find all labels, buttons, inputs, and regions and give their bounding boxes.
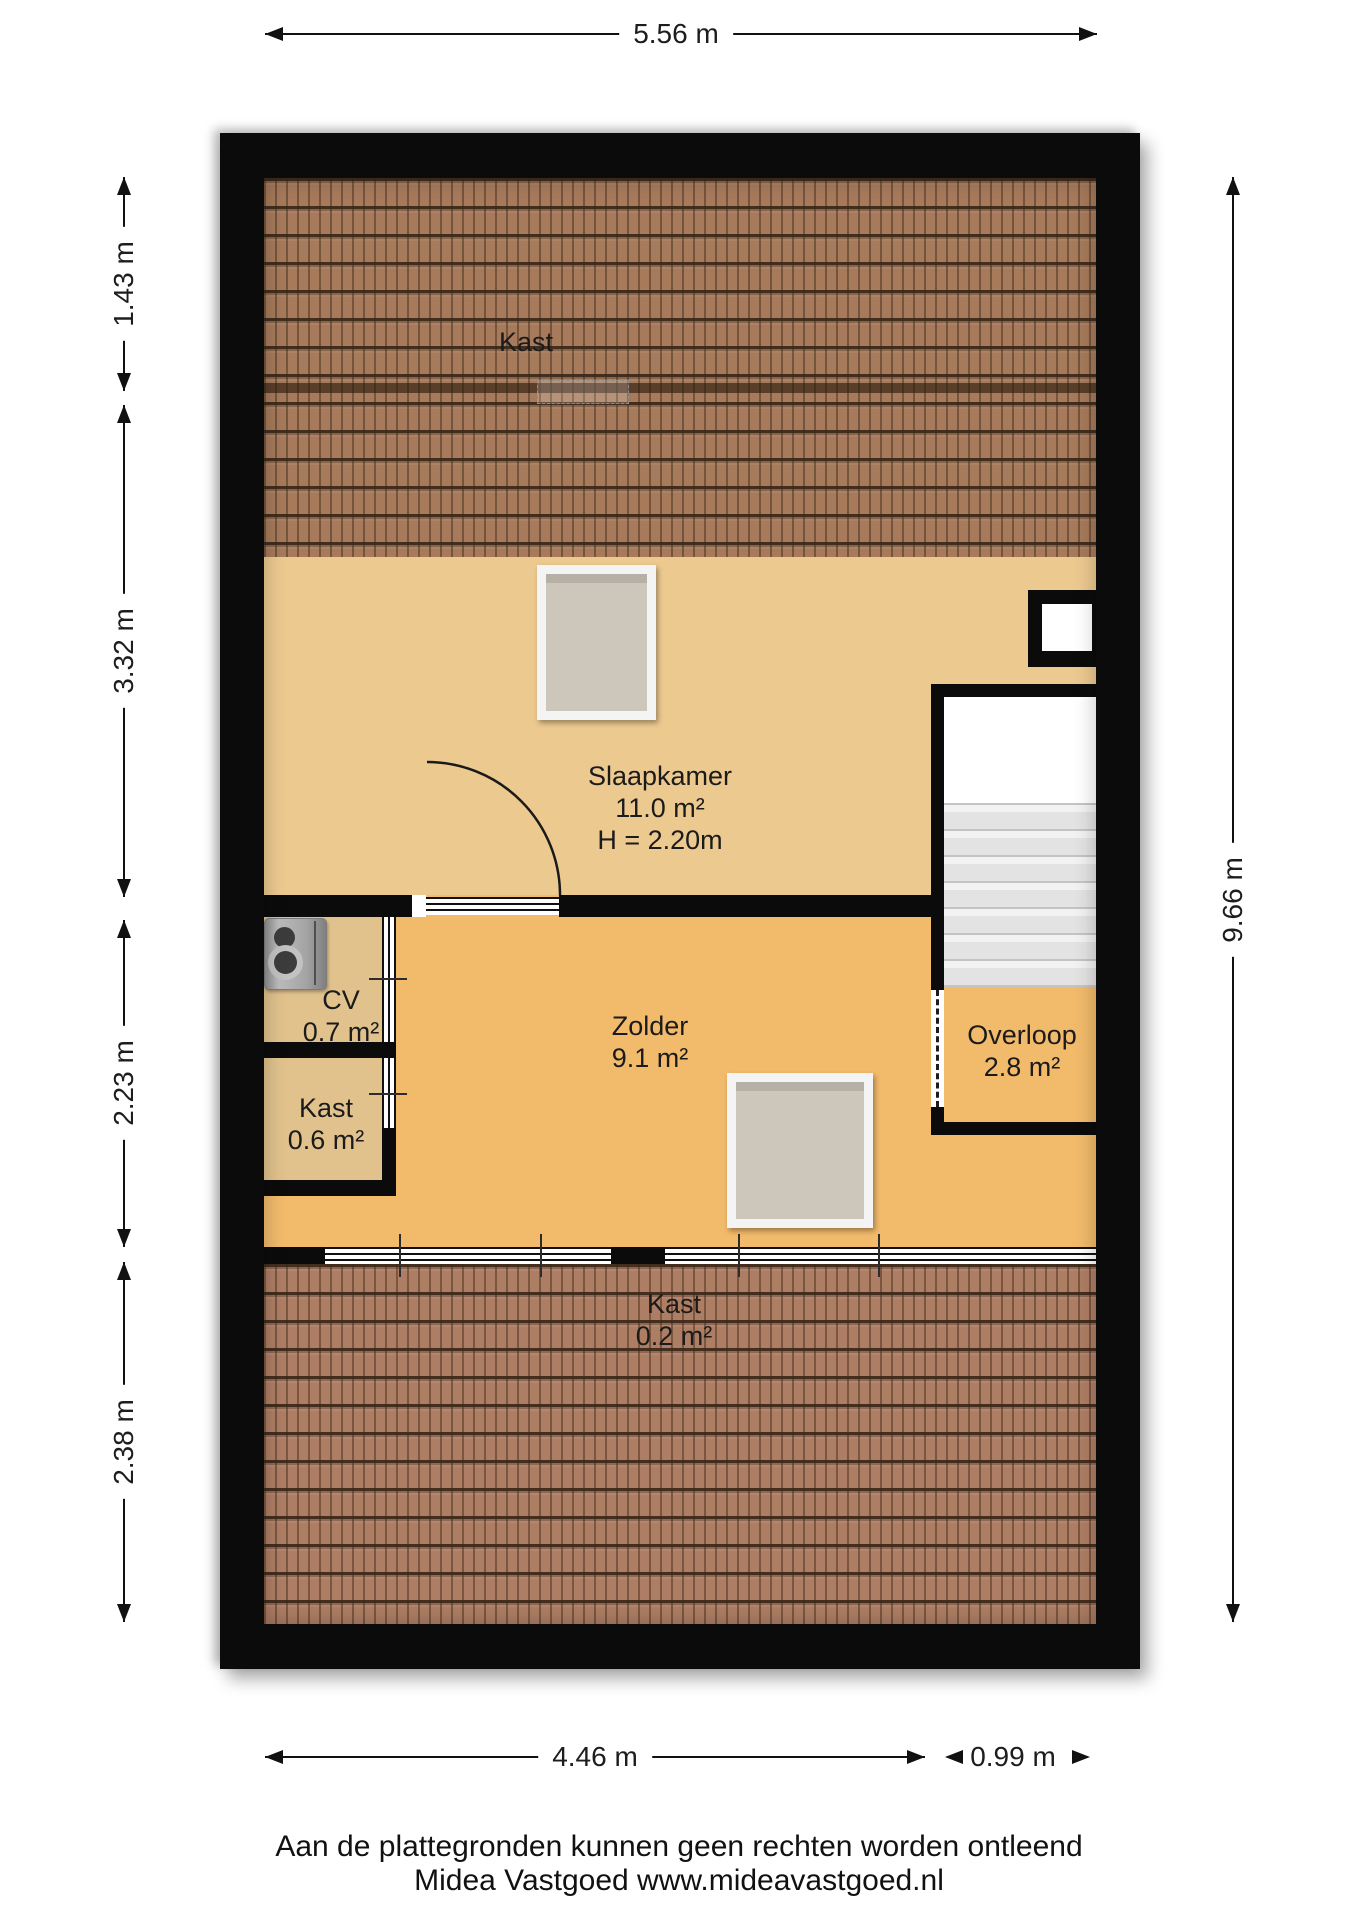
wall-tick [878, 1234, 880, 1277]
room-area: 0.6 m² [288, 1124, 365, 1156]
knee-wall-window [665, 1247, 1096, 1264]
dimension-label-bottom-2: 0.99 m [966, 1741, 1060, 1773]
arrowhead-icon [1226, 1604, 1240, 1622]
floor-plan-interior: Kast Slaapkamer 11.0 m² H = 2.20m CV 0.7… [264, 178, 1096, 1624]
room-label-kast-top: Kast [499, 326, 553, 358]
staircase [944, 697, 1096, 987]
dimension-label-top: 5.56 m [619, 18, 733, 50]
room-name: Zolder [612, 1010, 689, 1042]
arrowhead-icon [117, 1262, 131, 1280]
room-name: Kast [499, 327, 553, 357]
duct-niche-opening [1042, 604, 1092, 651]
stairwell-left-wall [931, 684, 944, 990]
arrowhead-icon [117, 1229, 131, 1247]
arrowhead-icon [117, 405, 131, 423]
door-leaf [426, 897, 559, 915]
duct-niche [1028, 590, 1096, 667]
boiler-edge-line [314, 921, 316, 985]
stairwell-top-wall [931, 684, 1096, 697]
room-name: CV [303, 984, 380, 1016]
floor-plan: Kast Slaapkamer 11.0 m² H = 2.20m CV 0.7… [220, 133, 1140, 1669]
partition-wall-stub [382, 1128, 396, 1196]
skylight-window [537, 565, 656, 720]
wall-tick [369, 1093, 407, 1095]
room-label-slaapkamer: Slaapkamer 11.0 m² H = 2.20m [588, 760, 732, 856]
room-label-overloop: Overloop 2.8 m² [967, 1019, 1077, 1083]
room-area: 2.8 m² [967, 1051, 1077, 1083]
slaapkamer-wall [264, 895, 412, 917]
wall-tick [399, 1234, 401, 1277]
arrowhead-icon [1079, 27, 1097, 41]
dimension-label-left-2: 3.32 m [106, 594, 142, 708]
room-area: 0.7 m² [303, 1016, 380, 1048]
knee-wall-segment [264, 1247, 325, 1264]
room-name: Slaapkamer [588, 760, 732, 792]
room-area: 9.1 m² [612, 1042, 689, 1074]
cv-boiler-icon [264, 918, 327, 990]
arrowhead-icon [117, 920, 131, 938]
overloop-bottom-wall [931, 1122, 1096, 1135]
overloop-opening [931, 990, 944, 1107]
arrowhead-icon [117, 1604, 131, 1622]
room-label-kast-mid: Kast 0.6 m² [288, 1092, 365, 1156]
roof-ridge-line [264, 383, 1096, 393]
wall-tick [369, 978, 407, 980]
knee-wall-window [325, 1247, 611, 1264]
footer-disclaimer: Aan de plattegronden kunnen geen rechten… [0, 1830, 1358, 1864]
floor-plan-page: Kast Slaapkamer 11.0 m² H = 2.20m CV 0.7… [0, 0, 1358, 1920]
footer-company: Midea Vastgoed www.mideavastgoed.nl [0, 1864, 1358, 1898]
cv-partition-wall [382, 917, 396, 1128]
arrowhead-icon [945, 1750, 963, 1764]
room-label-kast-bottom: Kast 0.2 m² [636, 1288, 713, 1352]
boiler-knob [274, 927, 295, 948]
room-name: Overloop [967, 1019, 1077, 1051]
room-name: Kast [288, 1092, 365, 1124]
arrowhead-icon [265, 27, 283, 41]
arrowhead-icon [907, 1750, 925, 1764]
knee-wall-segment [611, 1247, 665, 1264]
kast-mid-bottom-wall [264, 1180, 396, 1196]
room-area: 11.0 m² [588, 792, 732, 824]
stair-treads [944, 803, 1096, 987]
arrowhead-icon [117, 373, 131, 391]
opening-dashed-line [936, 990, 939, 1107]
dimension-label-bottom-1: 4.46 m [538, 1741, 652, 1773]
room-label-cv: CV 0.7 m² [303, 984, 380, 1048]
room-name: Kast [636, 1288, 713, 1320]
room-label-zolder: Zolder 9.1 m² [612, 1010, 689, 1074]
roof-hatch-patch [537, 380, 629, 404]
skylight-frame-top [736, 1082, 864, 1091]
dimension-label-left-1: 1.43 m [106, 227, 142, 341]
boiler-knob [274, 951, 297, 974]
room-height: H = 2.20m [588, 824, 732, 856]
skylight-window [727, 1073, 873, 1228]
dimension-label-left-4: 2.38 m [106, 1385, 142, 1499]
wall-tick [540, 1234, 542, 1277]
door-jamb [412, 895, 426, 917]
arrowhead-icon [117, 177, 131, 195]
arrowhead-icon [265, 1750, 283, 1764]
roof-section-top [264, 178, 1096, 557]
arrowhead-icon [1226, 177, 1240, 195]
room-area: 0.2 m² [636, 1320, 713, 1352]
wall-tick [738, 1234, 740, 1277]
arrowhead-icon [1072, 1750, 1090, 1764]
dimension-label-left-3: 2.23 m [106, 1026, 142, 1140]
dimension-label-right: 9.66 m [1215, 843, 1251, 957]
skylight-frame-top [546, 574, 647, 583]
slaapkamer-wall [559, 895, 931, 917]
arrowhead-icon [117, 879, 131, 897]
